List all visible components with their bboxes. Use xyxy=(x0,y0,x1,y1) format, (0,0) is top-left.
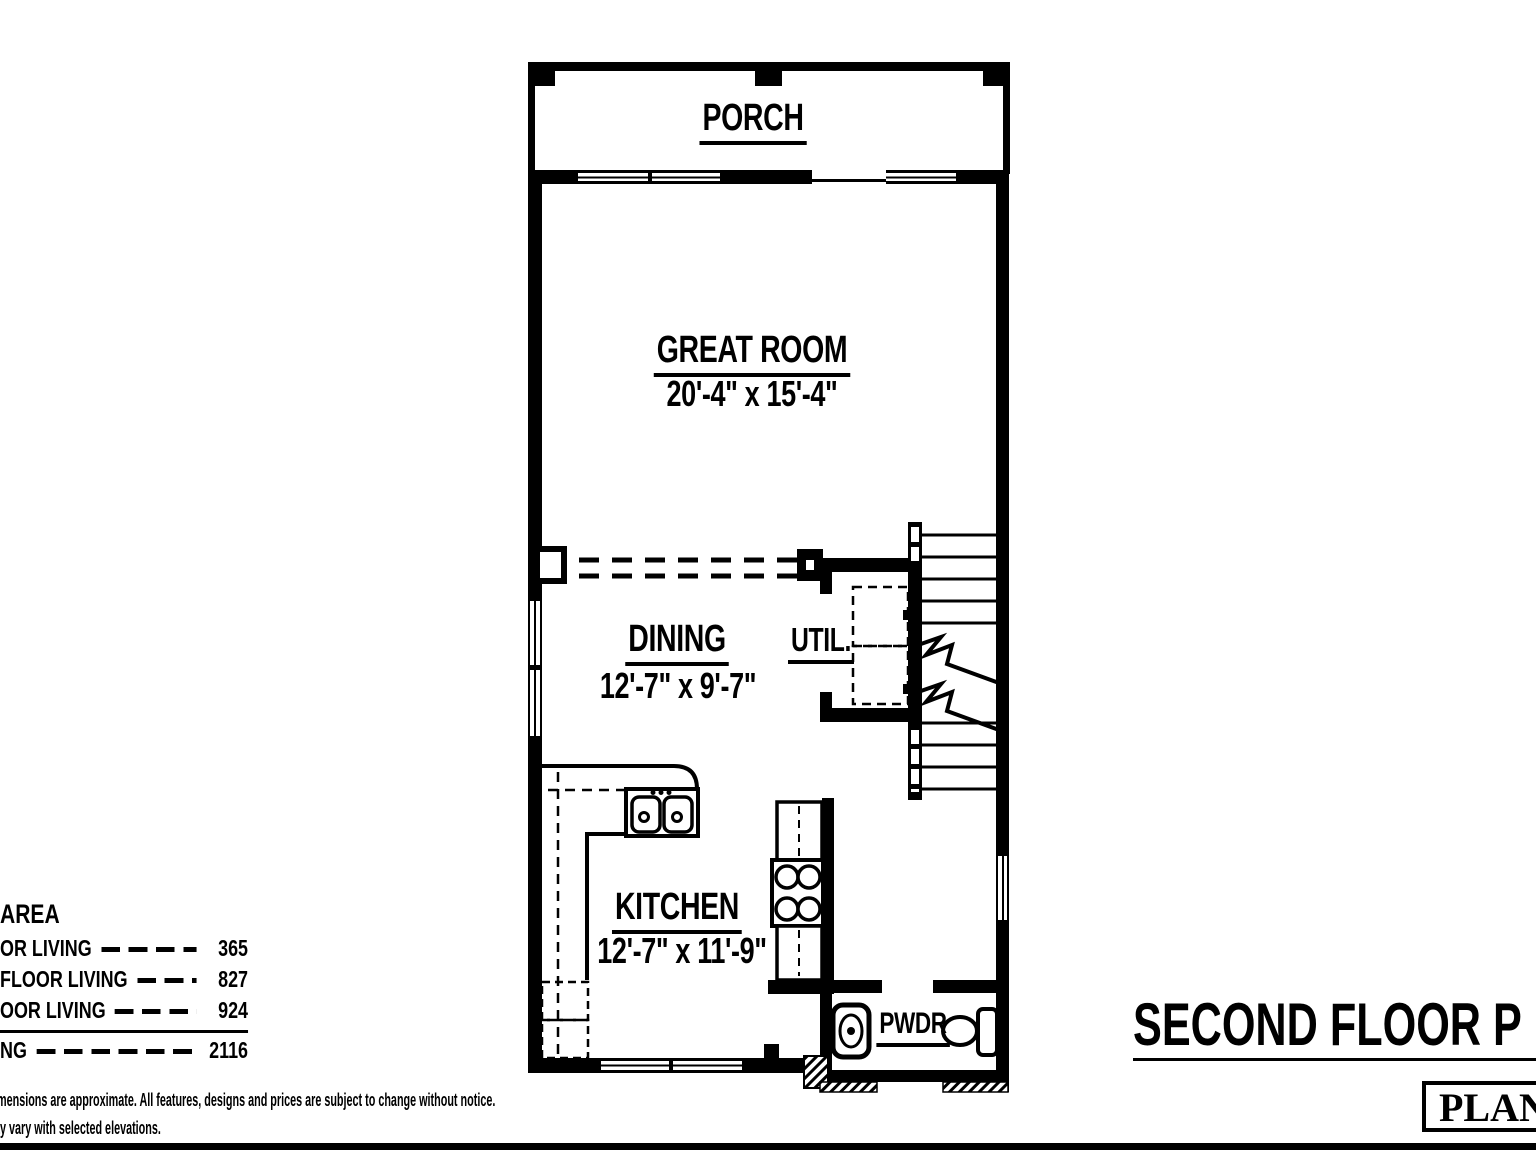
beam-dashed-line xyxy=(537,549,823,581)
washer-icon xyxy=(853,587,908,646)
leader-line xyxy=(137,978,197,983)
sheet-title-underline xyxy=(1133,1058,1536,1061)
great-room-label: GREAT ROOM xyxy=(654,331,850,377)
plan-number-box: PLAN xyxy=(1422,1081,1536,1132)
util-label: UTIL. xyxy=(788,623,854,664)
porch-column xyxy=(528,62,555,86)
toilet-icon xyxy=(833,1005,869,1057)
stair-treads xyxy=(922,535,996,789)
title-block-rule xyxy=(0,1143,1536,1150)
disclaimer: imensions are approximate. All features,… xyxy=(0,1086,495,1142)
area-row-label: FLOOR LIVING xyxy=(0,966,128,993)
porch-column xyxy=(755,62,782,86)
area-table-row: OOR LIVING 924 xyxy=(0,995,248,1026)
sheet-title: SECOND FLOOR P xyxy=(1133,995,1522,1055)
area-total-value: 2116 xyxy=(204,1037,248,1064)
area-row-value: 827 xyxy=(204,966,248,993)
great-room-dims: 20'-4" x 15'-4" xyxy=(667,376,838,412)
kitchen-dims: 12'-7" x 11'-9" xyxy=(597,933,766,969)
area-row-value: 365 xyxy=(204,935,248,962)
kitchen-sink-icon xyxy=(626,789,698,836)
bathroom-sink-icon xyxy=(943,1009,997,1055)
porch-column xyxy=(983,62,1010,86)
area-table-separator xyxy=(0,1030,248,1033)
dining-label: DINING xyxy=(625,620,729,666)
leader-line xyxy=(115,1009,197,1014)
stairs xyxy=(908,522,999,800)
beam-post xyxy=(537,549,564,581)
dryer-icon xyxy=(853,646,908,704)
door-jamb xyxy=(764,1044,779,1060)
floor-plan-sheet: { "colors": {"ink": "#000000", "paper": … xyxy=(0,0,1536,1152)
area-row-label: OR LIVING xyxy=(0,935,92,962)
plan-number-label: PLAN xyxy=(1439,1085,1536,1130)
pantry-box xyxy=(542,1020,588,1058)
area-table: AREA OR LIVING 365 FLOOR LIVING 827 OOR … xyxy=(0,901,248,1066)
range-icon xyxy=(772,860,823,926)
pantry-box xyxy=(542,982,588,1020)
dining-dims: 12'-7" x 9'-7" xyxy=(600,668,756,704)
area-table-title: AREA xyxy=(0,901,248,928)
area-table-total-row: NG 2116 xyxy=(0,1035,248,1066)
area-row-value: 924 xyxy=(204,997,248,1024)
area-table-row: OR LIVING 365 xyxy=(0,933,248,964)
area-total-label: NG xyxy=(0,1037,27,1064)
disclaimer-line-1: imensions are approximate. All features,… xyxy=(0,1086,495,1114)
porch-label: PORCH xyxy=(699,99,806,145)
kitchen-label: KITCHEN xyxy=(612,888,742,934)
disclaimer-line-2: ay vary with selected elevations. xyxy=(0,1114,495,1142)
leader-line xyxy=(101,947,197,952)
powder-label: PWDR xyxy=(876,1009,949,1047)
area-row-label: OOR LIVING xyxy=(0,997,106,1024)
stair-break-line xyxy=(918,637,999,683)
area-table-row: FLOOR LIVING 827 xyxy=(0,964,248,995)
leader-line xyxy=(36,1049,196,1054)
